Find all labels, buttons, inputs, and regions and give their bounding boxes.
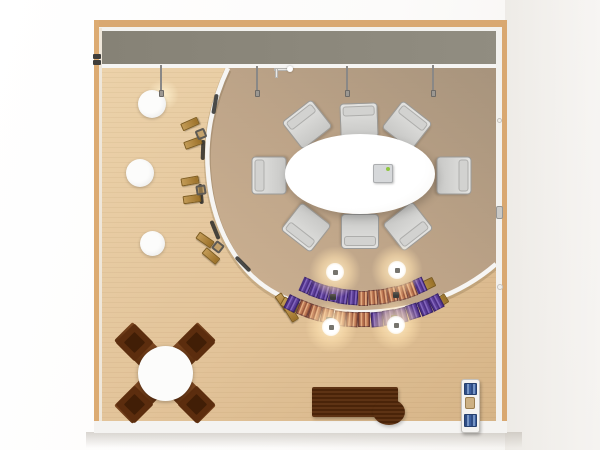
ceiling-light-mount-4 <box>394 323 399 328</box>
top-wall-gray-band <box>99 31 502 65</box>
stool-3[interactable] <box>140 231 165 256</box>
top-wall-white <box>94 27 507 31</box>
bookshelf-plant <box>465 397 475 409</box>
left-wall-inner <box>99 28 102 422</box>
pendant-bulb-4[interactable] <box>431 90 436 97</box>
conference-chair-4[interactable] <box>252 156 287 194</box>
table-device[interactable] <box>373 164 393 183</box>
cafe-round-table[interactable] <box>138 346 193 401</box>
pendant-stem-4 <box>432 65 434 92</box>
stool-2[interactable] <box>126 159 154 187</box>
wall-bracket-ball <box>287 66 293 72</box>
wall-knob-1 <box>497 118 502 123</box>
door-handle[interactable] <box>496 206 503 219</box>
pendant-bulb-3[interactable] <box>345 90 350 97</box>
ceiling-light-mount-2 <box>395 268 400 273</box>
ceiling-light-mount-3 <box>329 325 334 330</box>
auditorium-row-2-seat-7[interactable] <box>358 312 370 327</box>
pendant-bulb-1[interactable] <box>159 90 164 97</box>
floorplan-render <box>0 0 600 450</box>
curve-chair-2[interactable] <box>195 184 206 195</box>
bottom-wall <box>94 421 507 433</box>
ceiling-light-mount-1 <box>333 270 338 275</box>
right-wall-trim <box>502 20 507 433</box>
wall-bracket-post <box>275 68 278 78</box>
bookshelf-books-bottom <box>464 414 477 427</box>
credenza-desk-bulge <box>373 399 405 425</box>
conference-chair-2[interactable] <box>339 102 378 138</box>
wall-latch-2 <box>93 60 101 65</box>
pendant-stem-2 <box>256 66 258 93</box>
top-wall-trim <box>94 20 507 28</box>
pendant-stem-1 <box>160 65 162 92</box>
wall-knob-2 <box>497 284 503 290</box>
left-wall-trim <box>94 20 99 433</box>
bookshelf-books-top <box>464 383 477 395</box>
wall-latch-1 <box>93 54 101 59</box>
right-wall <box>496 31 503 422</box>
conference-chair-5[interactable] <box>437 156 472 194</box>
pendant-bulb-2[interactable] <box>255 90 260 97</box>
room-scene <box>0 0 600 450</box>
pendant-stem-3 <box>346 66 348 93</box>
conference-table[interactable] <box>285 134 435 214</box>
